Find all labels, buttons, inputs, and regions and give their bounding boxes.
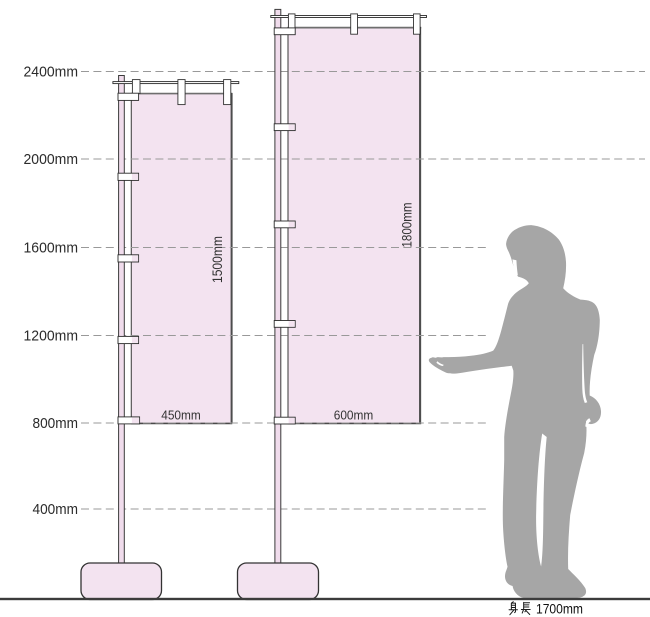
svg-text:2400mm: 2400mm [24, 65, 79, 81]
svg-text:400mm: 400mm [33, 502, 79, 518]
svg-text:800mm: 800mm [33, 416, 79, 432]
svg-text:1500mm: 1500mm [210, 236, 225, 283]
svg-text:1800mm: 1800mm [400, 203, 415, 248]
svg-text:450mm: 450mm [161, 408, 201, 422]
svg-text:1600mm: 1600mm [24, 241, 79, 257]
svg-text:2000mm: 2000mm [24, 152, 79, 168]
svg-text:600mm: 600mm [334, 409, 374, 423]
svg-text:1200mm: 1200mm [24, 329, 79, 345]
svg-text:1700mm: 1700mm [536, 601, 583, 617]
